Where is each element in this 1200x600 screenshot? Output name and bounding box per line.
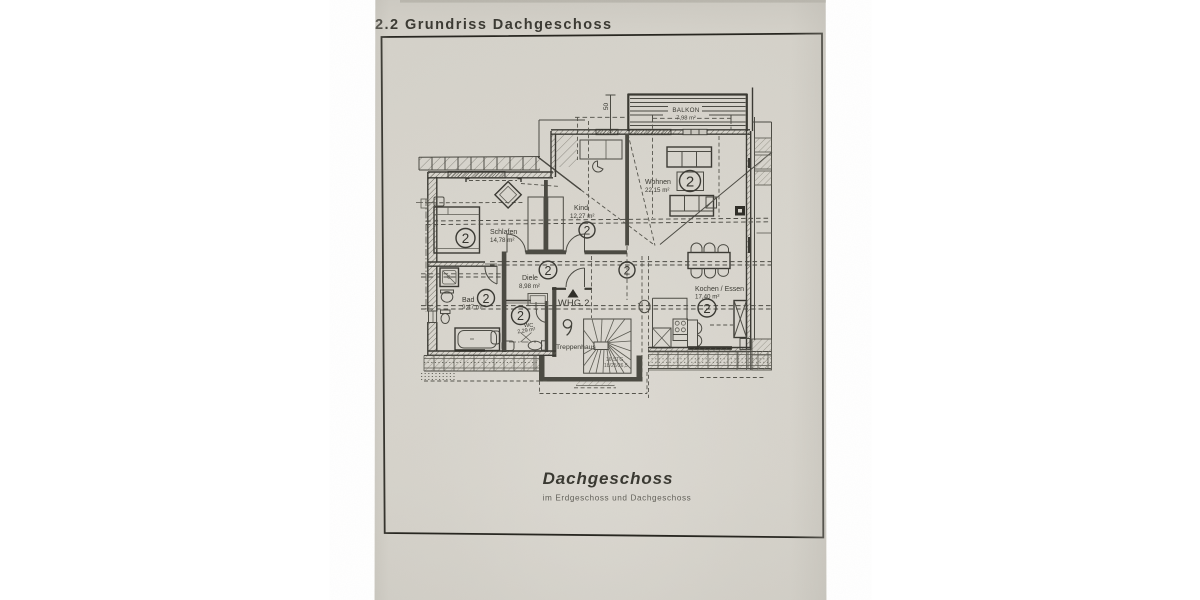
svg-text:im Erdgeschoss und Dachgeschos: im Erdgeschoss und Dachgeschoss [543, 494, 692, 503]
svg-text:Dachgeschoss: Dachgeschoss [543, 469, 674, 488]
